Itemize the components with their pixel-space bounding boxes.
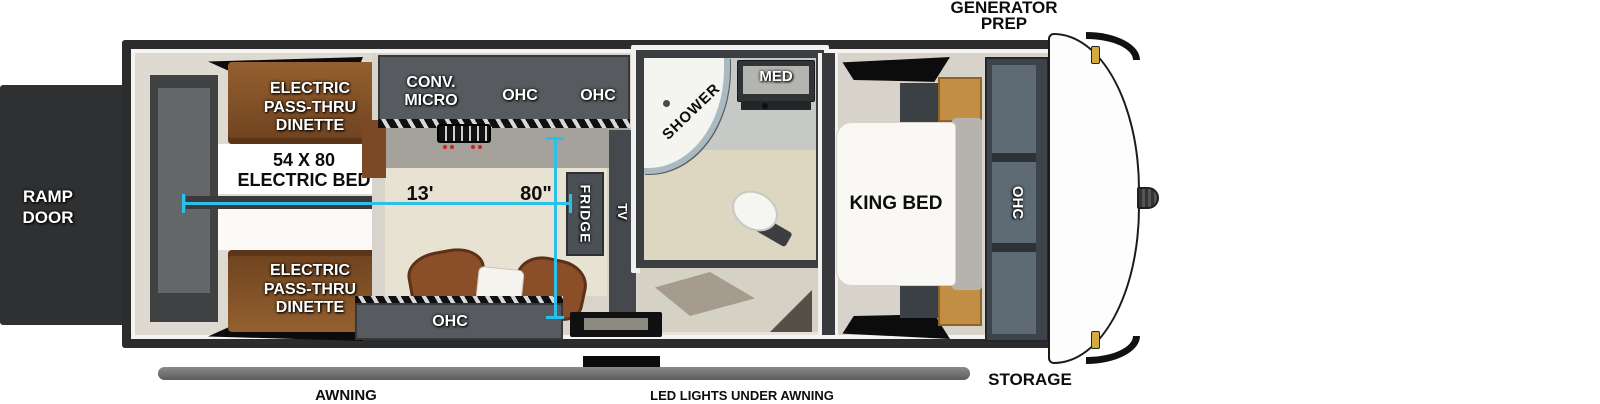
- tv-label: TV: [615, 203, 630, 220]
- entry-step-tread: [584, 318, 648, 330]
- awning-bar: [158, 367, 970, 380]
- led-strip: [583, 356, 660, 367]
- stove-knob-icon: [450, 145, 454, 149]
- dimension-line-vertical: [554, 139, 557, 319]
- conv-micro-line2: MICRO: [398, 92, 464, 110]
- king-bed-label: KING BED: [836, 194, 956, 215]
- stove-icon: [437, 124, 491, 143]
- ramp-door-label-line2: DOOR: [0, 207, 96, 228]
- shower-drain-icon: [663, 100, 670, 107]
- kitchen-cabinet-edge: [378, 119, 630, 128]
- bedroom-wall: [822, 53, 835, 335]
- med-shelf: [741, 101, 811, 110]
- dimension-cap-top: [546, 137, 564, 140]
- caption-led-lights: LED LIGHTS UNDER AWNING: [642, 389, 842, 403]
- hitch-icon: [1137, 187, 1159, 209]
- conv-micro-label: CONV. MICRO: [398, 74, 464, 110]
- dinette-top-line1: ELECTRIC: [230, 80, 390, 99]
- dimension-cap-right: [569, 194, 572, 213]
- fridge: FRIDGE: [566, 172, 604, 256]
- floorplan-canvas: RAMP DOOR ELECTRIC PASS-THRU DINETTE 54 …: [0, 0, 1600, 404]
- bed-base-block-top: [900, 83, 938, 123]
- electric-bed-surface: [218, 209, 390, 250]
- dimension-label-13ft: 13': [394, 183, 446, 205]
- ohc-right-label: OHC: [573, 87, 623, 105]
- caption-storage: STORAGE: [980, 371, 1080, 390]
- med-knob-icon: [762, 103, 768, 109]
- dinette-top-line2: PASS-THRU: [230, 99, 390, 118]
- wardrobe-divider: [992, 243, 1036, 252]
- kitchen-wood-end: [362, 120, 386, 178]
- dinette-bottom-line1: ELECTRIC: [230, 262, 390, 281]
- med-label: MED: [737, 69, 815, 86]
- conv-micro-line1: CONV.: [398, 74, 464, 92]
- stove-knob-icon: [478, 145, 482, 149]
- ohc-bottom-label: OHC: [400, 313, 500, 331]
- wardrobe-ohc-labelwrap: OHC: [1005, 176, 1031, 228]
- ramp-door-label-line1: RAMP: [0, 186, 96, 207]
- dimension-cap-bottom: [546, 316, 564, 319]
- caption-generator-prep: GENERATOR PREP: [929, 0, 1079, 32]
- front-cap: [1048, 33, 1140, 364]
- clearance-light-bottom-icon: [1091, 331, 1100, 349]
- kitchen-counter: [378, 122, 630, 168]
- ramp-door-label: RAMP DOOR: [0, 186, 96, 228]
- fridge-label: FRIDGE: [577, 185, 593, 244]
- dimension-cap-left: [182, 194, 185, 213]
- wardrobe-divider: [992, 153, 1036, 162]
- bed-pillow-strip: [952, 118, 982, 290]
- stove-knob-icon: [471, 145, 475, 149]
- clearance-light-top-icon: [1091, 46, 1100, 64]
- nightstand-top: [938, 77, 982, 122]
- ohc-left-label: OHC: [495, 87, 545, 105]
- stove-knob-icon: [443, 145, 447, 149]
- caption-awning: AWNING: [296, 388, 396, 404]
- generator-prep-line2: PREP: [929, 16, 1079, 32]
- dimension-label-80in: 80": [510, 183, 562, 205]
- ramp-interior-panel-inset: [158, 88, 210, 293]
- wardrobe-ohc-label: OHC: [1010, 185, 1027, 218]
